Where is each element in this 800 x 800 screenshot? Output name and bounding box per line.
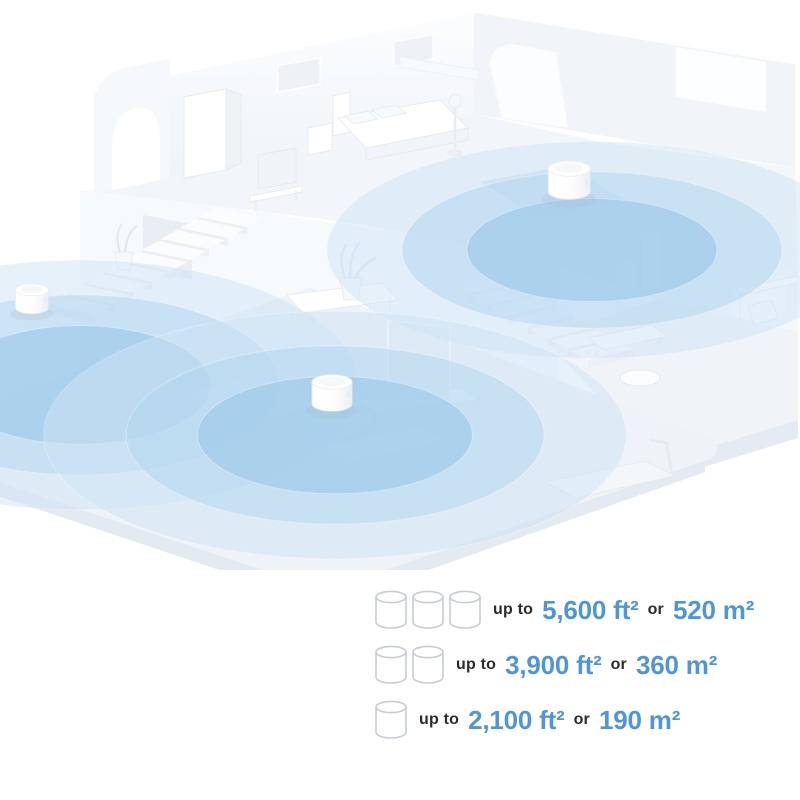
- coverage-center: [43, 311, 626, 559]
- mesh-unit-cylinder-icon: [374, 589, 408, 631]
- or-label: or: [611, 656, 627, 674]
- metric-area-value: 190 m²: [599, 705, 680, 736]
- mesh-router-left: [11, 284, 54, 320]
- up-to-label: up to: [493, 601, 533, 619]
- marketing-image: up to 5,600 ft² or 520 m² up to 3,900 ft…: [0, 0, 800, 800]
- mesh-router-center: [306, 375, 358, 419]
- coverage-legend: up to 5,600 ft² or 520 m² up to 3,900 ft…: [374, 589, 754, 741]
- mesh-unit-icons: [374, 699, 408, 741]
- nightstand: [308, 123, 332, 155]
- or-label: or: [648, 601, 664, 619]
- mesh-unit-cylinder-icon: [374, 644, 408, 686]
- arched-window: [490, 44, 568, 128]
- house-illustration: [0, 0, 800, 570]
- mesh-router-top: [542, 161, 597, 207]
- wardrobe: [184, 89, 241, 178]
- mesh-unit-cylinder-icon: [374, 699, 408, 741]
- imperial-area-value: 3,900 ft²: [505, 650, 601, 681]
- round-stool: [620, 370, 660, 386]
- metric-area-value: 520 m²: [673, 595, 754, 626]
- imperial-area-value: 2,100 ft²: [468, 705, 564, 736]
- coverage-row-3-units: up to 5,600 ft² or 520 m²: [374, 589, 754, 631]
- coverage-row-2-units: up to 3,900 ft² or 360 m²: [374, 644, 754, 686]
- up-to-label: up to: [419, 711, 459, 729]
- mesh-unit-cylinder-icon: [448, 589, 482, 631]
- up-to-label: up to: [456, 656, 496, 674]
- metric-area-value: 360 m²: [636, 650, 717, 681]
- mesh-unit-icons: [374, 644, 445, 686]
- imperial-area-value: 5,600 ft²: [542, 595, 638, 626]
- or-label: or: [574, 711, 590, 729]
- mesh-unit-icons: [374, 589, 482, 631]
- coverage-row-1-unit: up to 2,100 ft² or 190 m²: [374, 699, 754, 741]
- mesh-unit-cylinder-icon: [411, 644, 445, 686]
- mesh-unit-cylinder-icon: [411, 589, 445, 631]
